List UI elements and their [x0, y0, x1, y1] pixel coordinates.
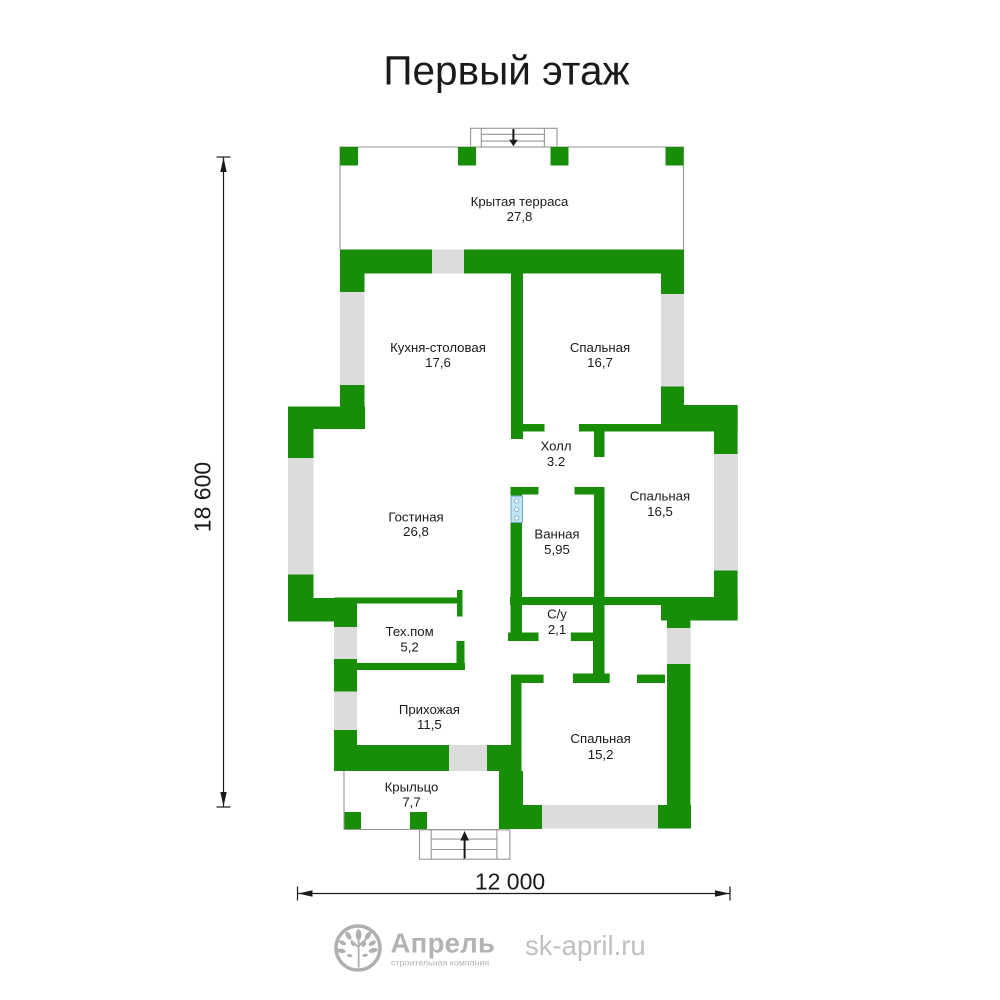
svg-text:16,7: 16,7	[587, 355, 613, 370]
svg-text:3.2: 3.2	[547, 454, 565, 469]
svg-text:2,1: 2,1	[548, 622, 566, 637]
svg-text:Гостиная: Гостиная	[388, 510, 443, 525]
svg-text:17,6: 17,6	[425, 355, 451, 370]
svg-text:С/у: С/у	[547, 607, 567, 622]
svg-text:Первый этаж: Первый этаж	[383, 48, 629, 94]
svg-text:Крытая терраса: Крытая терраса	[471, 194, 569, 209]
svg-text:12 000: 12 000	[475, 869, 545, 895]
svg-text:Тех.пом: Тех.пом	[386, 624, 434, 639]
svg-text:26,8: 26,8	[403, 524, 429, 539]
svg-text:Прихожая: Прихожая	[399, 702, 460, 717]
svg-text:sk-april.ru: sk-april.ru	[525, 930, 646, 961]
svg-text:5,2: 5,2	[400, 640, 418, 655]
svg-text:18 600: 18 600	[190, 462, 216, 532]
svg-text:Апрель: Апрель	[391, 928, 496, 959]
svg-text:5,95: 5,95	[544, 542, 570, 557]
svg-text:11,5: 11,5	[417, 717, 442, 732]
svg-text:7,7: 7,7	[402, 795, 420, 810]
svg-text:15,2: 15,2	[588, 747, 614, 762]
svg-text:Кухня-столовая: Кухня-столовая	[390, 340, 486, 355]
svg-text:27,8: 27,8	[507, 209, 533, 224]
svg-text:Спальная: Спальная	[570, 731, 630, 746]
svg-text:Спальная: Спальная	[630, 489, 690, 504]
svg-text:Крыльцо: Крыльцо	[385, 780, 439, 795]
svg-text:Спальная: Спальная	[570, 340, 630, 355]
svg-text:Холл: Холл	[540, 439, 571, 454]
svg-text:Ванная: Ванная	[534, 527, 579, 542]
svg-text:16,5: 16,5	[647, 504, 673, 519]
svg-text:строительная компания: строительная компания	[391, 958, 489, 968]
